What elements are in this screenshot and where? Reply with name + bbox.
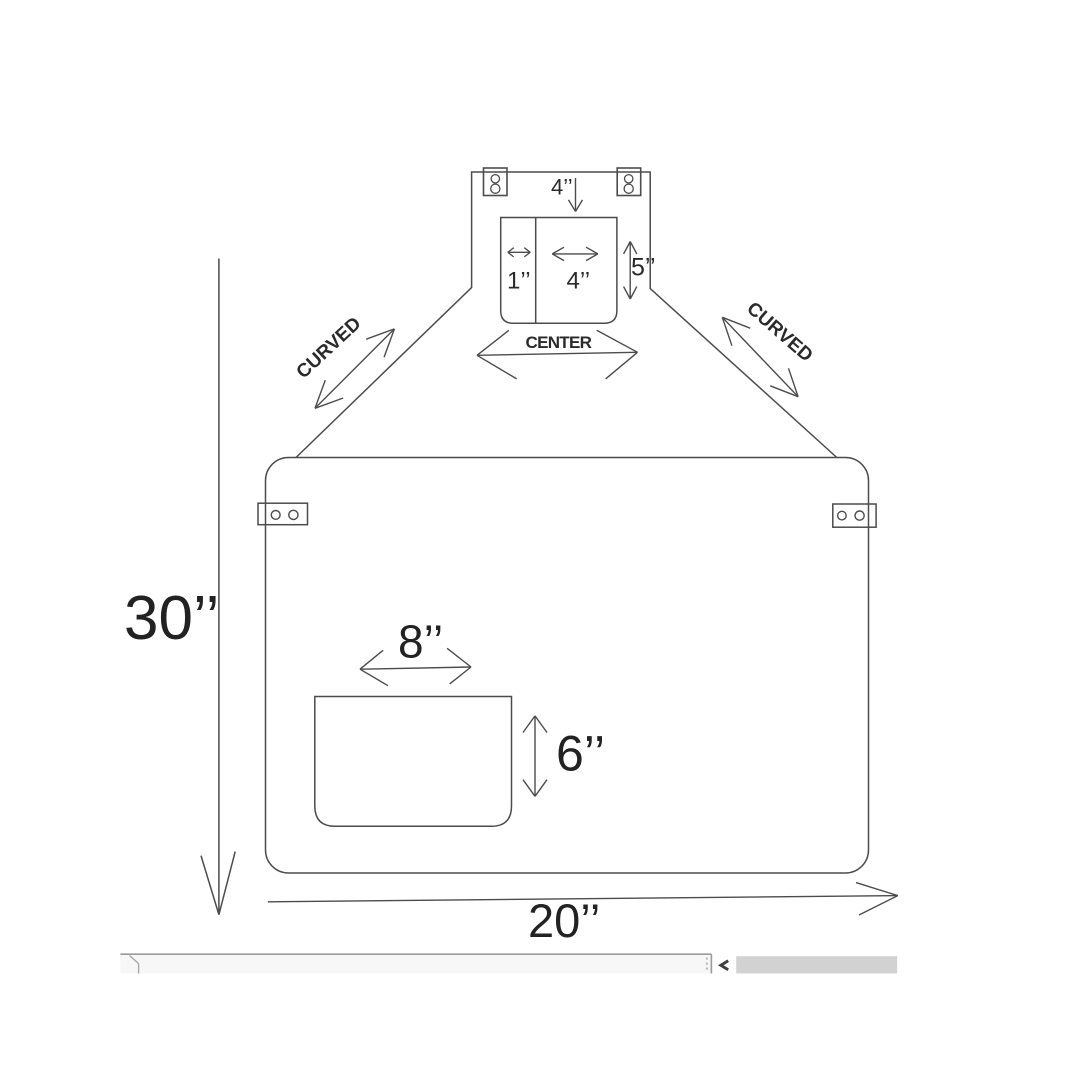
svg-text:1’’: 1’’ xyxy=(507,268,531,295)
svg-text:20’’: 20’’ xyxy=(528,894,600,947)
svg-text:5’’: 5’’ xyxy=(631,254,656,282)
svg-text:CURVED: CURVED xyxy=(293,313,366,383)
svg-text:CURVED: CURVED xyxy=(743,298,817,366)
svg-text:6’’: 6’’ xyxy=(556,726,605,782)
svg-text:30’’: 30’’ xyxy=(124,584,219,653)
svg-text:CENTER: CENTER xyxy=(526,333,592,352)
svg-text:8’’: 8’’ xyxy=(398,616,443,668)
svg-text:4’’: 4’’ xyxy=(567,268,591,295)
svg-text:4’’: 4’’ xyxy=(551,175,573,200)
